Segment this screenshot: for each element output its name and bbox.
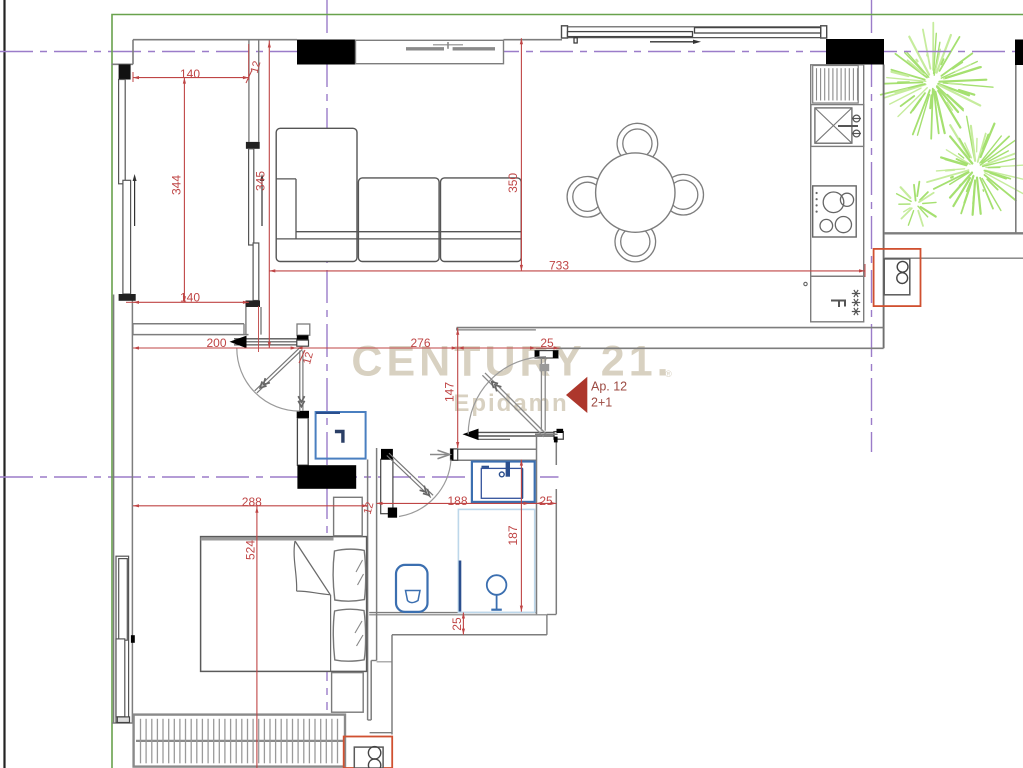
svg-text:Ap. 12: Ap. 12 <box>591 380 627 394</box>
svg-text:25: 25 <box>539 494 553 508</box>
svg-text:344: 344 <box>170 175 184 195</box>
svg-text:524: 524 <box>244 540 258 560</box>
svg-text:140: 140 <box>180 291 200 305</box>
svg-text:25: 25 <box>450 617 464 631</box>
svg-text:350: 350 <box>506 173 520 193</box>
svg-text:CENTURY 21.: CENTURY 21. <box>351 338 672 386</box>
svg-text:200: 200 <box>206 336 226 350</box>
svg-text:147: 147 <box>443 382 457 402</box>
svg-text:276: 276 <box>410 336 430 350</box>
svg-text:140: 140 <box>180 67 200 81</box>
svg-text:®: ® <box>665 369 672 379</box>
svg-text:733: 733 <box>549 259 569 273</box>
svg-text:288: 288 <box>242 495 262 509</box>
svg-text:187: 187 <box>506 525 520 545</box>
svg-text:25: 25 <box>540 336 554 350</box>
svg-text:345: 345 <box>254 171 268 191</box>
svg-text:2+1: 2+1 <box>591 396 612 410</box>
svg-text:188: 188 <box>447 494 467 508</box>
